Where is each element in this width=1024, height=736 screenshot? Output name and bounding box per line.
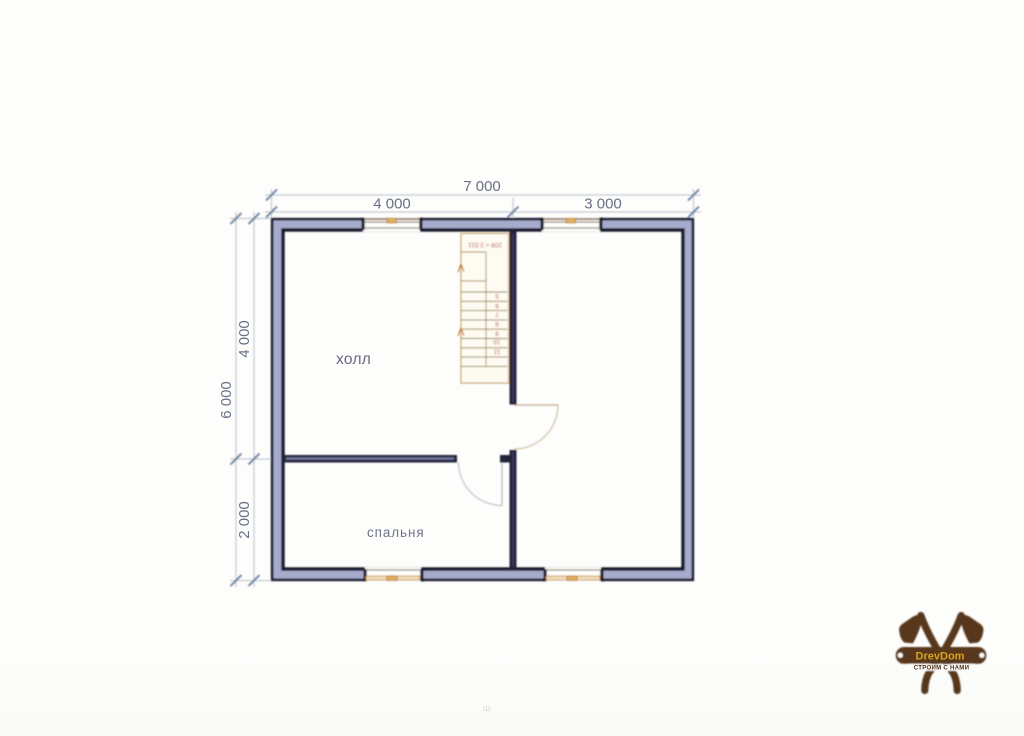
svg-text:209 = 2.511: 209 = 2.511 bbox=[468, 241, 502, 248]
svg-text:DrevDom: DrevDom bbox=[916, 651, 965, 663]
svg-text:9: 9 bbox=[495, 330, 499, 337]
svg-text:10: 10 bbox=[493, 338, 501, 345]
svg-text:8: 8 bbox=[495, 320, 499, 327]
svg-text:6: 6 bbox=[495, 302, 499, 309]
svg-text:7 000: 7 000 bbox=[463, 178, 501, 195]
svg-text:4 000: 4 000 bbox=[373, 196, 411, 213]
svg-text:5: 5 bbox=[495, 292, 499, 299]
svg-text:11: 11 bbox=[493, 348, 500, 355]
svg-text:2 000: 2 000 bbox=[236, 501, 253, 539]
svg-text:7: 7 bbox=[495, 310, 499, 317]
svg-text:спальня: спальня bbox=[367, 525, 425, 540]
svg-text:6 000: 6 000 bbox=[218, 381, 235, 419]
svg-text:СТРОИМ С НАМИ: СТРОИМ С НАМИ bbox=[914, 664, 969, 671]
svg-text:4 000: 4 000 bbox=[236, 320, 253, 358]
svg-text:ш: ш bbox=[483, 703, 490, 713]
svg-text:3 000: 3 000 bbox=[584, 196, 622, 213]
svg-text:холл: холл bbox=[336, 351, 371, 368]
